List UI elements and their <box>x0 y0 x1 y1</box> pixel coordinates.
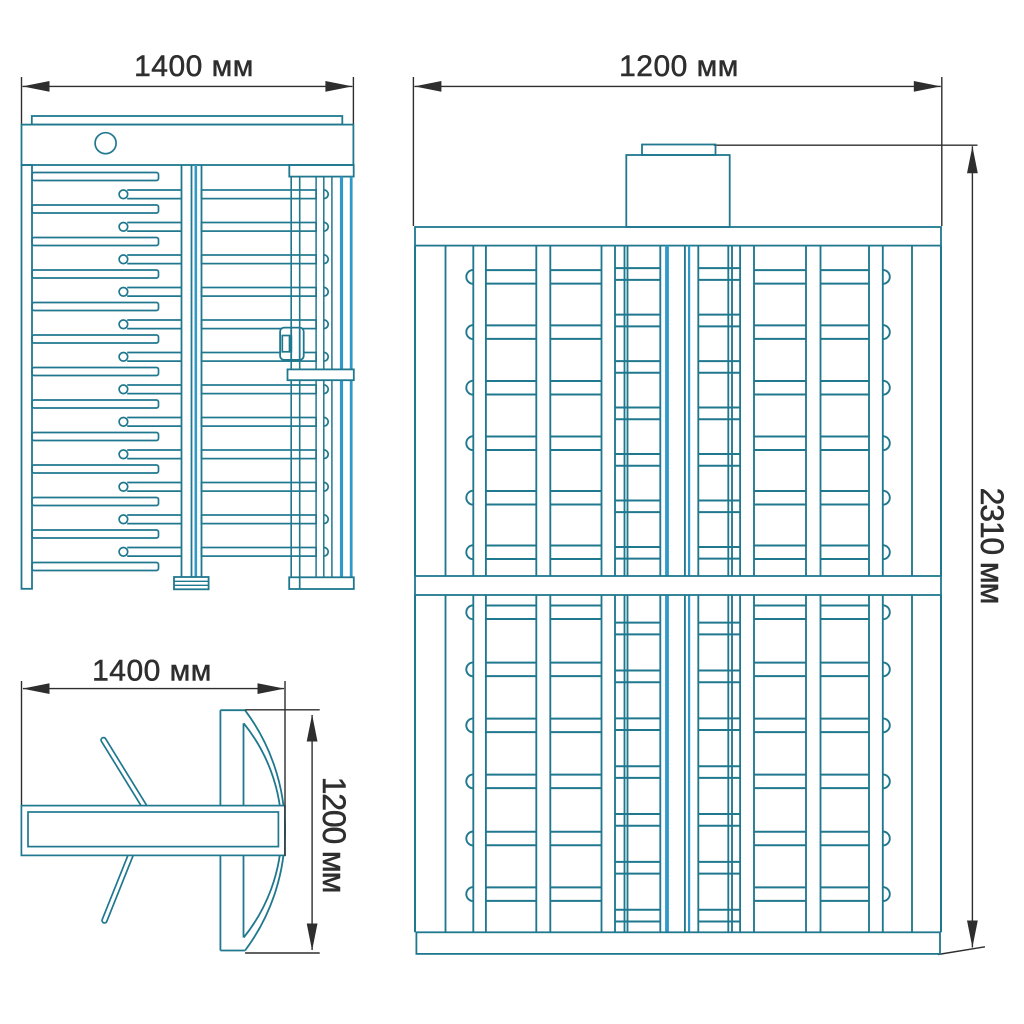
svg-text:1200 мм: 1200 мм <box>316 777 352 893</box>
svg-text:1400 мм: 1400 мм <box>134 50 254 83</box>
svg-text:2310 мм: 2310 мм <box>974 488 1010 604</box>
svg-text:1400 мм: 1400 мм <box>92 655 212 688</box>
svg-text:1200 мм: 1200 мм <box>619 50 739 83</box>
